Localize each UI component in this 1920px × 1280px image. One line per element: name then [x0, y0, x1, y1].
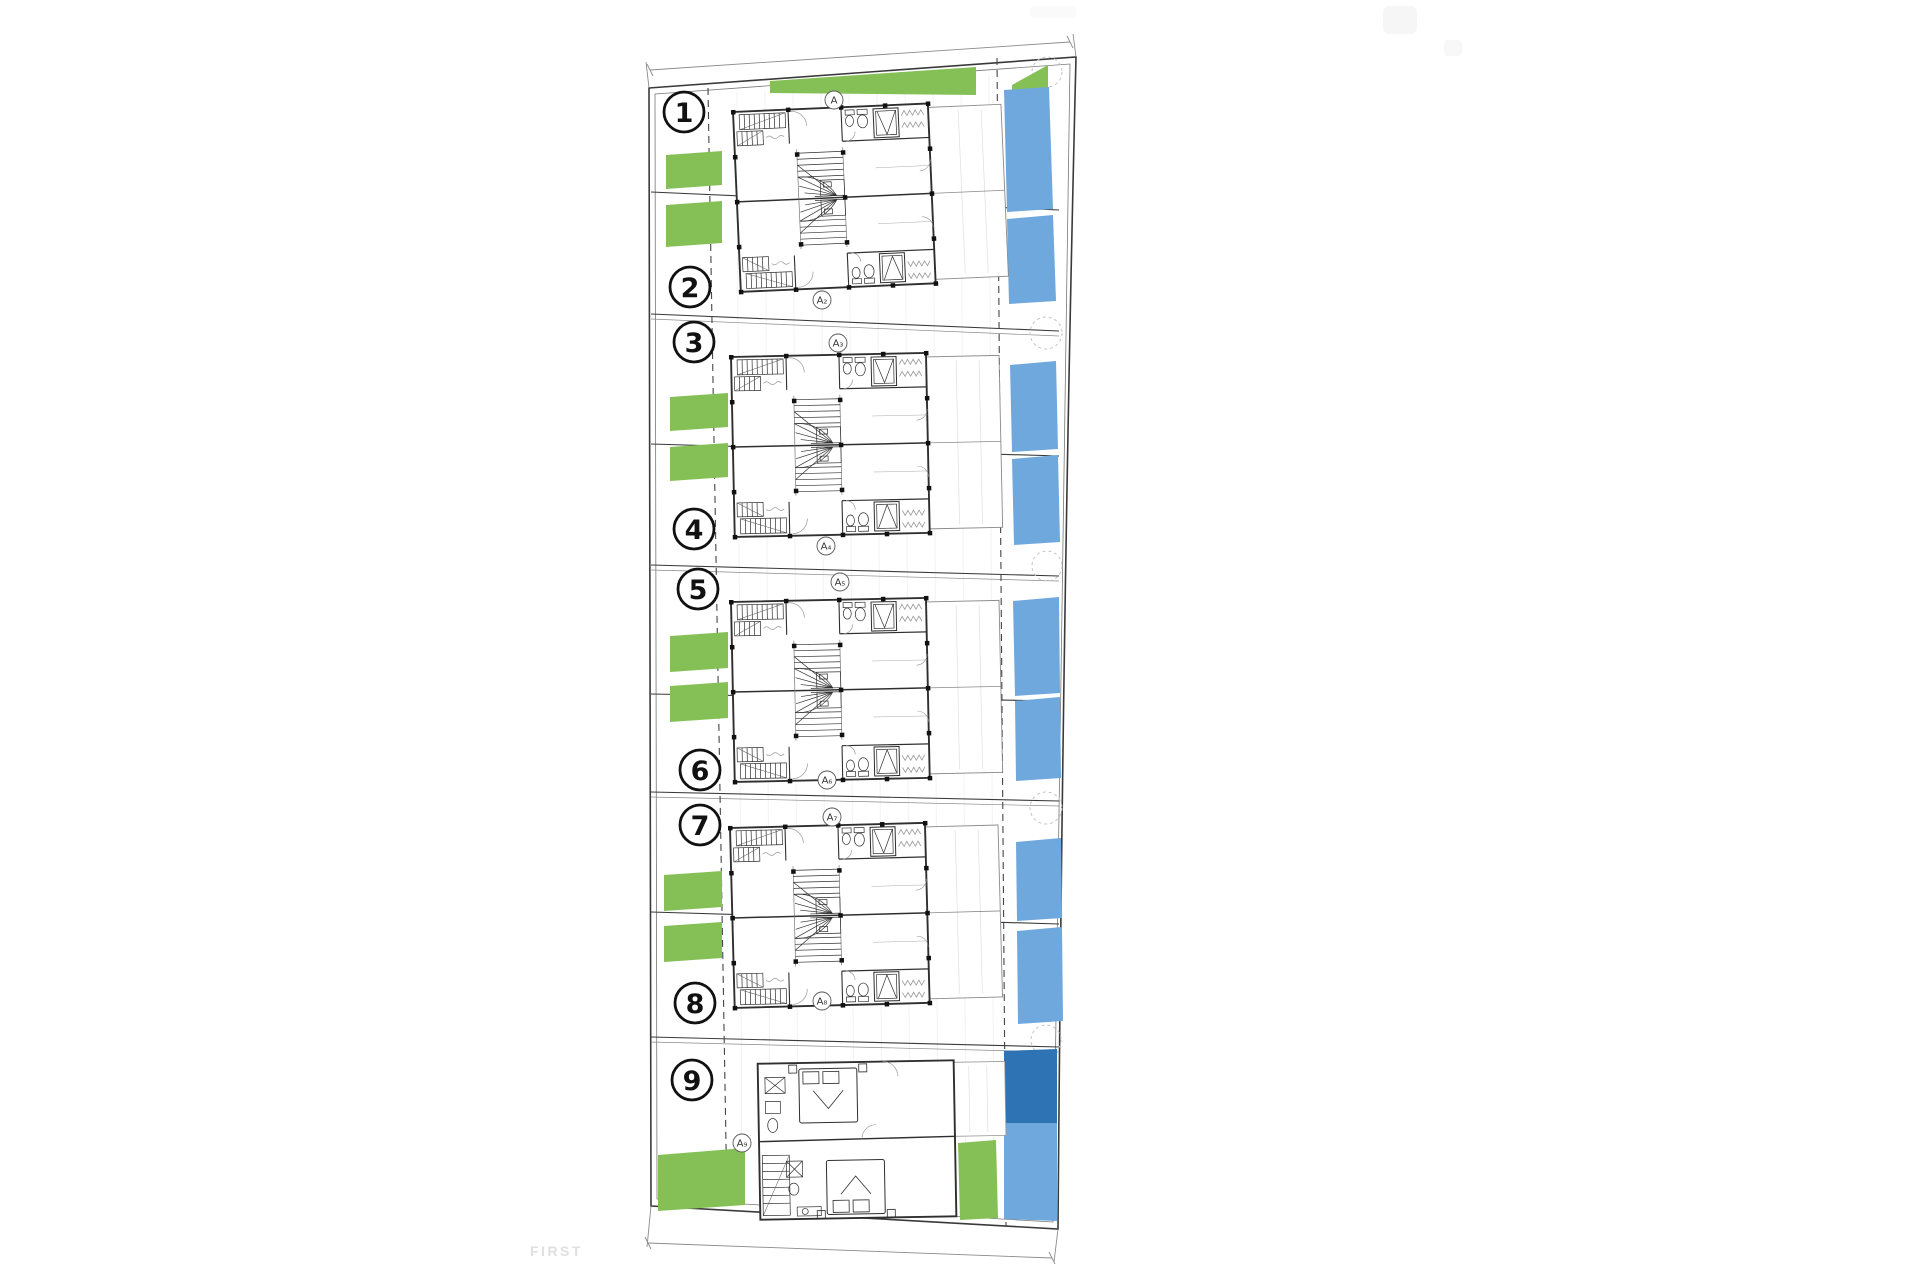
- garden-unit-3: [670, 393, 728, 431]
- section-marker-a8: A₈: [813, 992, 831, 1010]
- scan-artifacts: [1030, 6, 1462, 56]
- pool-unit-2: [1007, 215, 1056, 304]
- svg-text:7: 7: [691, 811, 710, 842]
- unit-badge-6: 6: [680, 750, 720, 790]
- svg-text:3: 3: [685, 328, 704, 359]
- svg-text:4: 4: [685, 515, 704, 546]
- svg-text:A₇: A₇: [827, 813, 838, 824]
- section-marker-a2: A₂: [813, 291, 831, 309]
- section-marker-a7: A₇: [823, 808, 841, 826]
- pool-unit-1: [1004, 87, 1053, 212]
- garden-unit-2: [666, 201, 722, 247]
- unit-badge-2: 2: [670, 267, 710, 307]
- unit-badge-4: 4: [674, 509, 714, 549]
- section-marker-a4: A₄: [817, 537, 835, 555]
- pool-unit-6: [1015, 697, 1061, 781]
- duplex-floorplan-units-7-8: [728, 819, 1003, 1011]
- svg-text:1: 1: [675, 98, 694, 129]
- pool-unit-9-shallow: [1004, 1123, 1057, 1221]
- svg-text:2: 2: [681, 273, 700, 304]
- garden-unit-7: [664, 871, 722, 911]
- pool-unit-3: [1010, 361, 1058, 452]
- svg-text:6: 6: [691, 756, 710, 787]
- site-plan-page: 1 2 3 4 5 6 7 8: [0, 0, 1920, 1280]
- svg-text:A: A: [831, 96, 838, 107]
- unit-badge-9: 9: [672, 1060, 712, 1100]
- svg-text:A₆: A₆: [822, 776, 833, 787]
- pool-unit-7: [1016, 838, 1062, 921]
- unit-badge-8: 8: [675, 983, 715, 1023]
- section-marker-a3: A₃: [829, 334, 847, 352]
- section-marker-a5: A₅: [831, 573, 849, 591]
- floor-level-watermark: FIRST: [530, 1243, 583, 1259]
- pool-unit-4: [1012, 455, 1060, 545]
- section-marker-a: A: [825, 91, 843, 109]
- pool-unit-9-deep: [1004, 1049, 1057, 1123]
- svg-text:A₃: A₃: [833, 339, 844, 350]
- unit-badge-3: 3: [674, 322, 714, 362]
- duplex-floorplan-units-5-6: [729, 594, 1003, 784]
- svg-text:A₂: A₂: [817, 296, 828, 307]
- unit-badge-7: 7: [680, 805, 720, 845]
- garden-unit-4: [670, 443, 728, 481]
- duplex-floorplan-units-1-2: [731, 98, 1009, 294]
- svg-text:9: 9: [683, 1066, 702, 1097]
- section-marker-a9: A₉: [733, 1134, 751, 1152]
- section-marker-a6: A₆: [818, 771, 836, 789]
- pool-unit-8: [1017, 927, 1063, 1024]
- garden-unit-9-right: [958, 1140, 998, 1220]
- garden-unit-1: [666, 151, 722, 189]
- garden-unit-8: [664, 922, 722, 962]
- svg-text:8: 8: [686, 989, 705, 1020]
- garden-unit-9-left: [658, 1148, 745, 1211]
- pool-unit-5: [1013, 597, 1060, 696]
- unit-badge-5: 5: [678, 569, 718, 609]
- svg-text:5: 5: [689, 575, 708, 606]
- svg-text:A₄: A₄: [821, 542, 832, 553]
- garden-unit-6: [670, 682, 728, 722]
- garden-unit-5: [670, 632, 728, 672]
- svg-text:A₉: A₉: [737, 1139, 748, 1150]
- duplex-floorplan-units-3-4: [729, 349, 1003, 539]
- svg-text:A₅: A₅: [835, 578, 846, 589]
- svg-text:A₈: A₈: [817, 997, 828, 1008]
- unit-badge-1: 1: [664, 92, 704, 132]
- site-plan-drawing: 1 2 3 4 5 6 7 8: [0, 0, 1920, 1280]
